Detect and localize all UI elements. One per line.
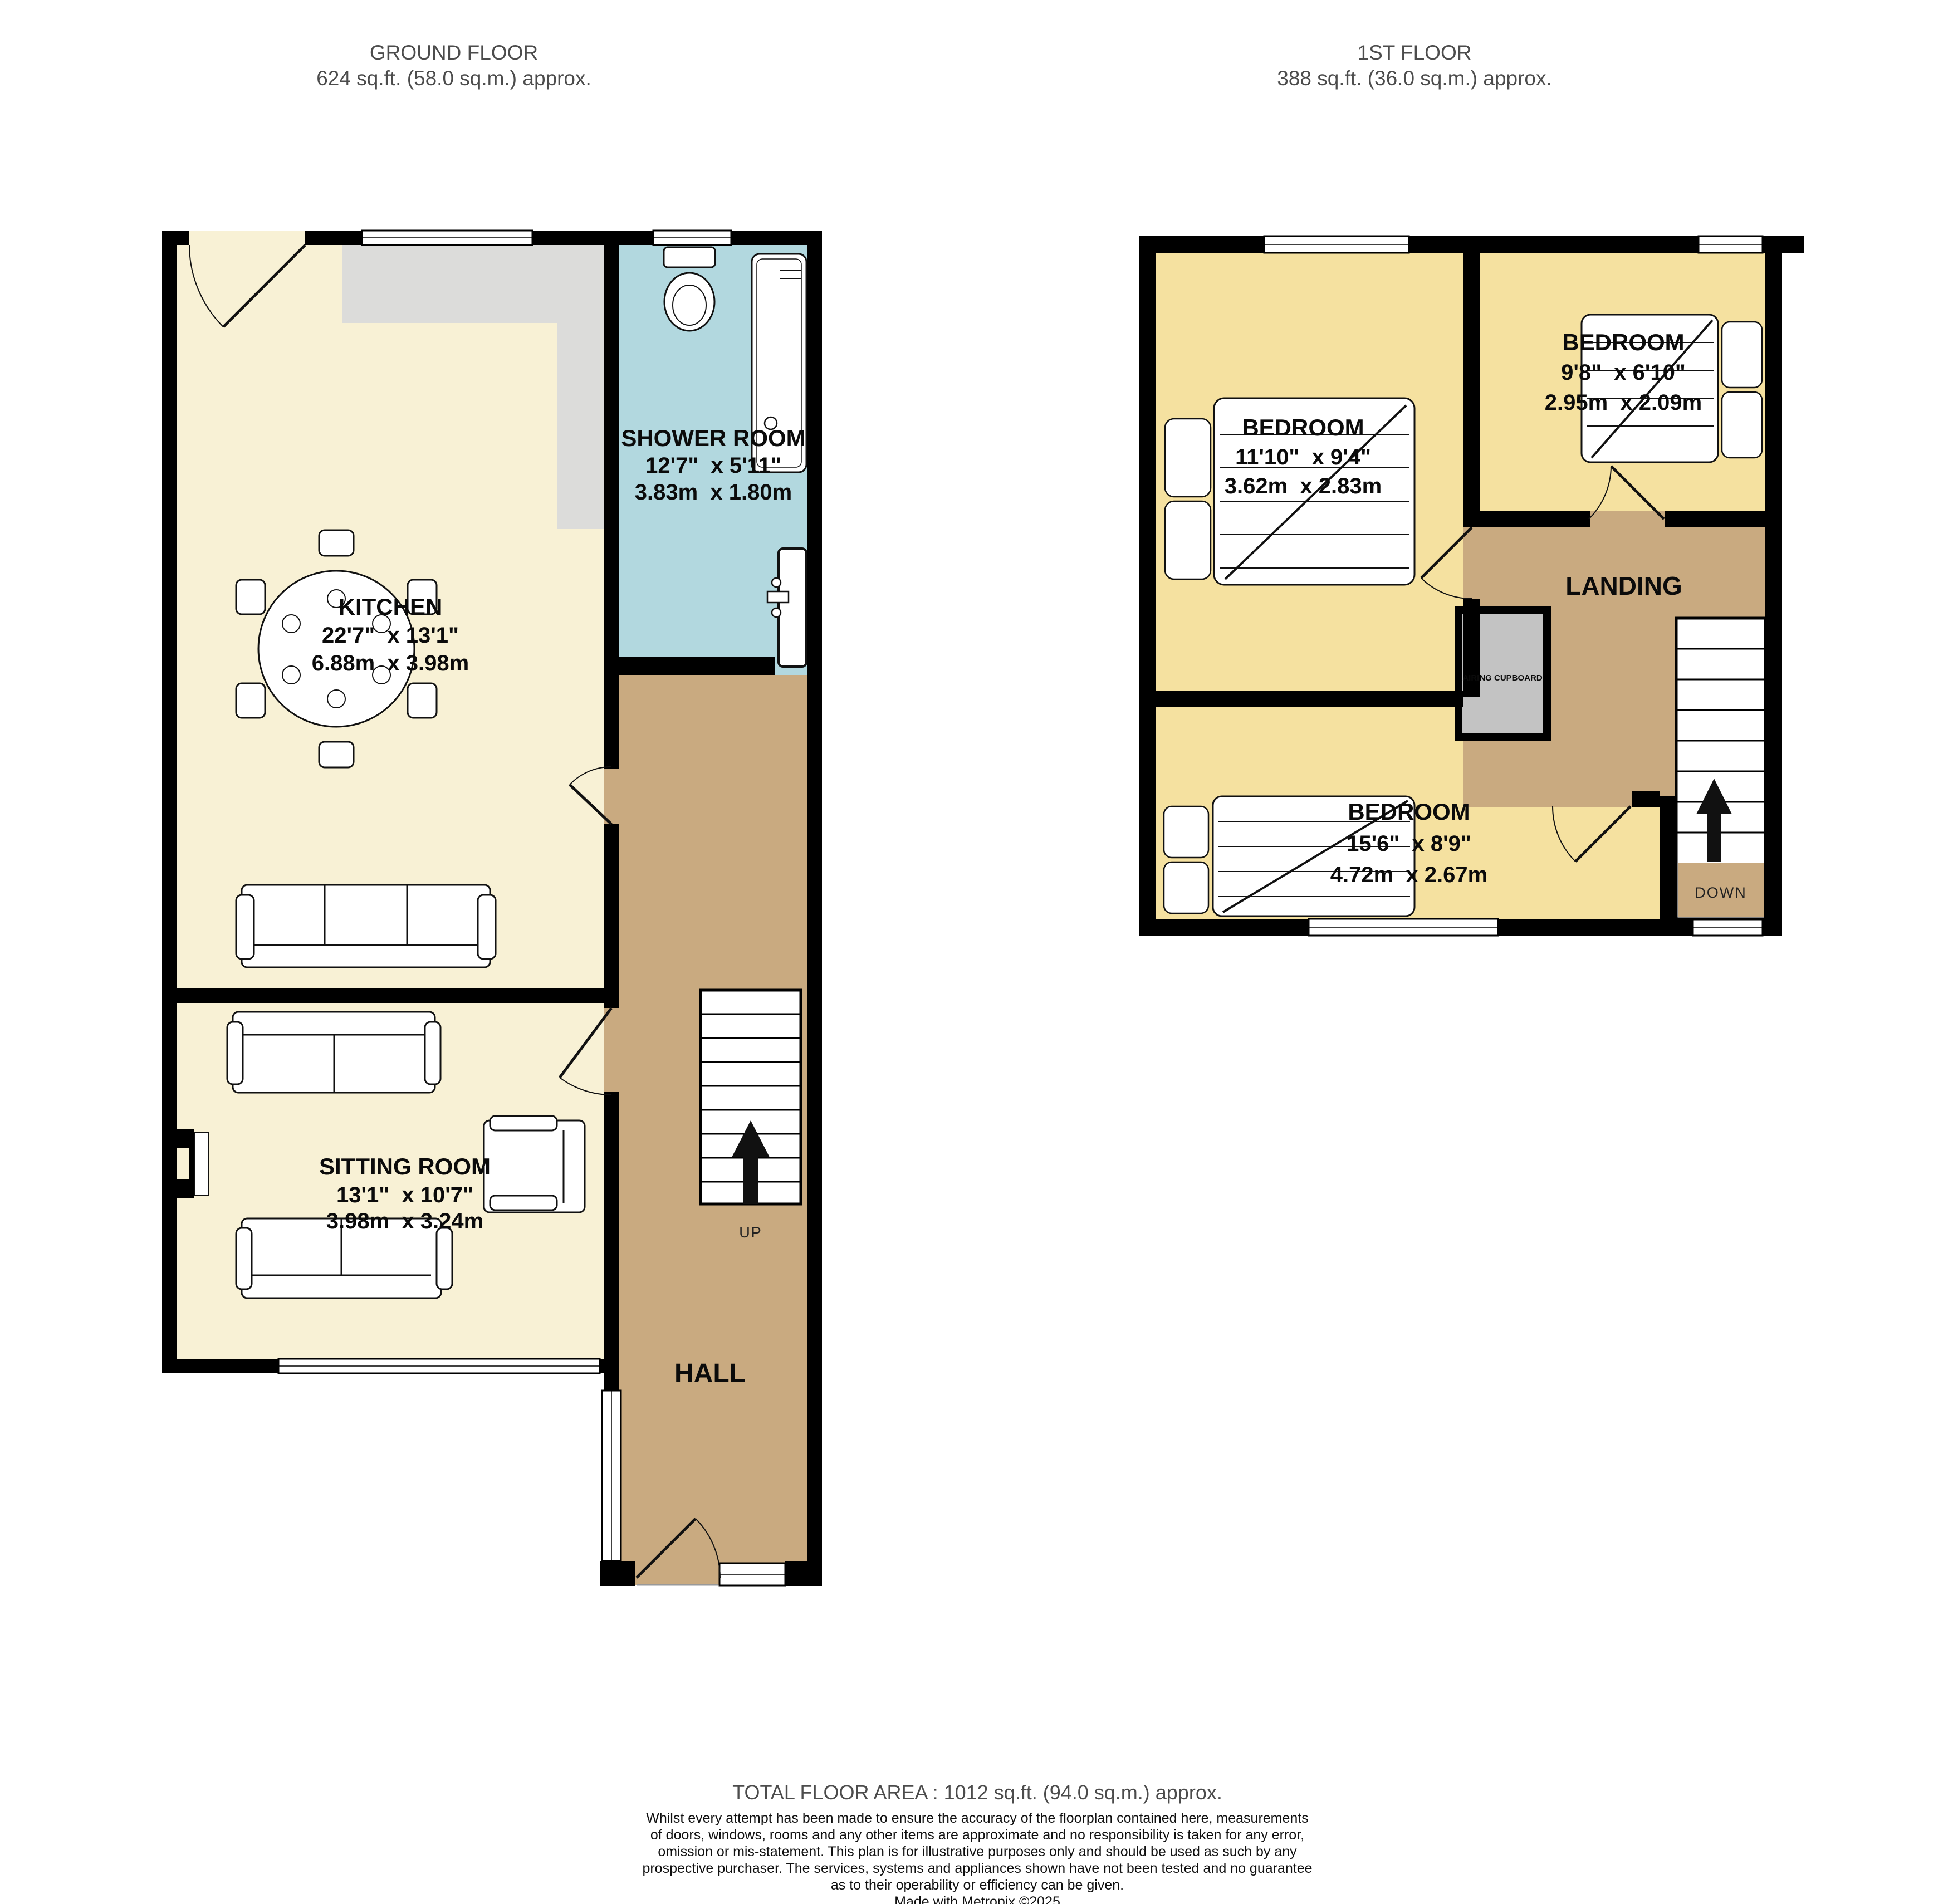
disclaimer-line: omission or mis-statement. This plan is … [504,1843,1451,1860]
shower-room-dims-metric: 3.83m x 1.80m [635,480,792,505]
window [362,231,532,245]
bedroom-left-label: BEDROOM [1242,414,1364,440]
shower-room-dims-imperial: 12'7" x 5'11" [645,453,781,478]
kitchen-dims-imperial: 22'7" x 13'1" [322,623,459,648]
bedroom-left-dims-metric: 3.62m x 2.83m [1225,474,1382,498]
bedroom-right-dims-metric: 2.95m x 2.09m [1545,390,1702,415]
dining-chair [236,580,265,614]
window [719,1563,785,1585]
ground-floor-plan: KITCHEN 22'7" x 13'1" 6.88m x 3.98m SHOW… [162,231,822,1586]
total-floor-area: TOTAL FLOOR AREA : 1012 sq.ft. (94.0 sq.… [476,1781,1479,1804]
fireplace [177,1129,209,1198]
disclaimer-line: Whilst every attempt has been made to en… [504,1810,1451,1827]
staircase-down [1676,618,1765,919]
window [278,1359,600,1373]
armchair [484,1116,585,1212]
kitchen-worktop-top [342,245,604,323]
toilet [664,247,715,331]
kitchen-sofa [236,885,496,967]
dining-chair [319,742,354,767]
kitchen-worktop-side [557,323,604,529]
hall-label: HALL [674,1359,746,1388]
sitting-room-dims-metric: 3.98m x 3.24m [326,1209,483,1234]
place-setting [282,666,300,684]
credit-line: Made with Metropix ©2025 [504,1893,1451,1904]
window [653,231,731,245]
window [1309,919,1498,936]
window [1699,236,1763,253]
floorplan-drawing: KITCHEN 22'7" x 13'1" 6.88m x 3.98m SHOW… [0,0,1953,1904]
entry-door-gap [189,231,305,246]
bedroom-bottom-dims-imperial: 15'6" x 8'9" [1347,831,1471,856]
sitting-room-label: SITTING ROOM [319,1153,491,1179]
bedroom-left-dims-imperial: 11'10" x 9'4" [1235,445,1371,469]
disclaimer-line: prospective purchaser. The services, sys… [504,1860,1451,1877]
disclaimer-line: as to their operability or efficiency ca… [504,1877,1451,1893]
dining-chair [408,683,437,718]
bedroom-right-label: BEDROOM [1562,329,1684,355]
dining-chair [236,683,265,718]
stairs-up-label: UP [739,1224,762,1241]
window [1264,236,1409,253]
landing-label: LANDING [1565,571,1682,600]
sitting-room-dims-imperial: 13'1" x 10'7" [336,1183,473,1207]
place-setting [282,615,300,633]
bedroom-bottom-dims-metric: 4.72m x 2.67m [1330,863,1487,887]
floorplan-page: GROUND FLOOR 624 sq.ft. (58.0 sq.m.) app… [0,0,1953,1904]
window [602,1391,621,1561]
kitchen-dims-metric: 6.88m x 3.98m [312,651,469,676]
staircase-up [701,990,801,1204]
window [1693,919,1763,936]
stairs-down-label: DOWN [1695,884,1746,901]
disclaimer-block: Whilst every attempt has been made to en… [504,1810,1451,1904]
sitting-room-sofa-top [227,1012,440,1093]
kitchen-label: KITCHEN [339,594,443,620]
disclaimer-line: of doors, windows, rooms and any other i… [504,1827,1451,1843]
bedroom-bottom-label: BEDROOM [1348,799,1470,825]
place-setting [327,690,345,708]
bedroom-right-dims-imperial: 9'8" x 6'10" [1561,360,1686,385]
dining-chair [319,530,354,556]
airing-cupboard-label: AIRING CUPBOARD [1462,673,1543,683]
first-floor-plan: BEDROOM 11'10" x 9'4" 3.62m x 2.83m BEDR… [1139,236,1804,936]
shower-room-label: SHOWER ROOM [621,425,805,451]
